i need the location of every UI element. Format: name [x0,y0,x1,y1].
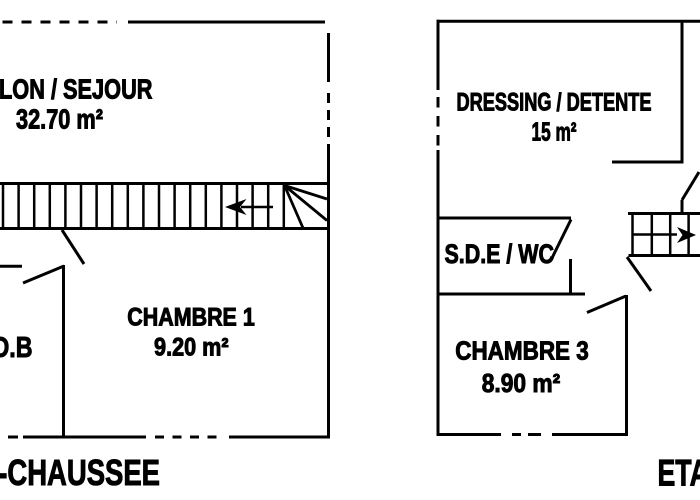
svg-text:CHAMBRE 1: CHAMBRE 1 [127,304,255,332]
svg-text:ETAGE: ETAGE [658,453,700,494]
svg-text:S.D.B: S.D.B [0,332,32,364]
svg-text:REZ-DE-CHAUSSEE: REZ-DE-CHAUSSEE [0,452,160,493]
svg-text:DRESSING / DETENTE: DRESSING / DETENTE [457,89,652,117]
svg-text:9.20 m²: 9.20 m² [154,334,229,362]
svg-text:15 m²: 15 m² [532,117,577,147]
svg-text:32.70 m²: 32.70 m² [16,104,103,135]
svg-text:CHAMBRE 3: CHAMBRE 3 [455,336,589,366]
svg-text:LON / SEJOUR: LON / SEJOUR [0,74,153,105]
svg-text:S.D.E / WC: S.D.E / WC [445,239,555,269]
svg-text:8.90 m²: 8.90 m² [482,368,561,398]
